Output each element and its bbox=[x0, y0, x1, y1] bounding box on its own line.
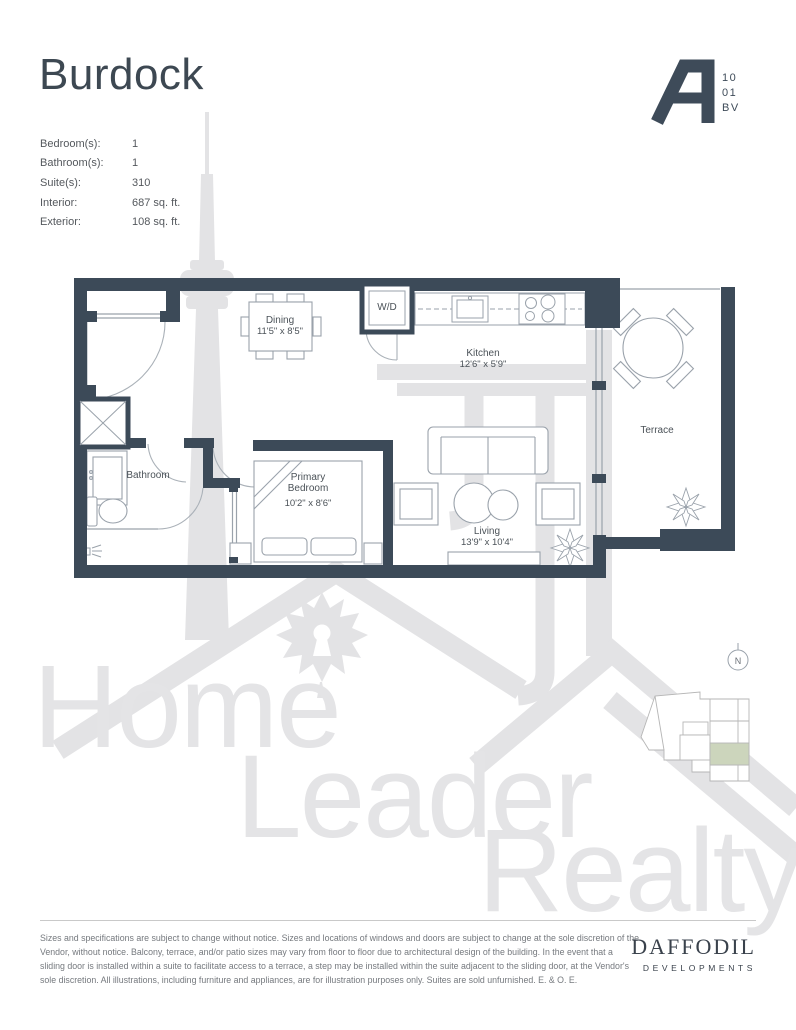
room-label-terrace: Terrace bbox=[640, 425, 673, 436]
kitchen-sink-icon bbox=[452, 296, 488, 322]
keyplan-suite-highlight bbox=[710, 743, 749, 765]
plant-icon bbox=[551, 529, 589, 567]
north-arrow-icon: N bbox=[728, 643, 748, 670]
north-label: N bbox=[735, 656, 742, 666]
plant-icon bbox=[667, 488, 705, 526]
shaft-box bbox=[78, 399, 128, 447]
toilet-icon bbox=[87, 497, 127, 526]
floorplan-sheet: Home Leader Realty Burdock Bedroom(s): 1… bbox=[0, 0, 796, 1030]
keyplan bbox=[641, 692, 749, 781]
room-label-wd: W/D bbox=[377, 302, 396, 313]
coffee-tables bbox=[454, 483, 518, 523]
room-dims: 10'2" x 8'6" bbox=[285, 498, 332, 509]
floorplan-drawing: N bbox=[0, 0, 796, 1030]
sofa bbox=[428, 427, 548, 474]
room-label-dining: Dining 11'5" x 8'5" bbox=[257, 315, 303, 337]
terrace-table-set bbox=[614, 309, 694, 389]
kitchen-counter bbox=[415, 293, 585, 325]
shower-icon bbox=[86, 545, 102, 557]
room-dims: 13'9" x 10'4" bbox=[461, 537, 513, 548]
room-label-primary-bedroom: Primary Bedroom 10'2" x 8'6" bbox=[285, 472, 332, 509]
room-dims: 11'5" x 8'5" bbox=[257, 326, 303, 337]
room-label-bathroom: Bathroom bbox=[126, 470, 169, 481]
stove-icon bbox=[519, 294, 565, 324]
room-label-kitchen: Kitchen 12'6" x 5'9" bbox=[460, 348, 507, 370]
room-dims: 12'6" x 5'9" bbox=[460, 359, 507, 370]
room-label-living: Living 13'9" x 10'4" bbox=[461, 526, 513, 548]
